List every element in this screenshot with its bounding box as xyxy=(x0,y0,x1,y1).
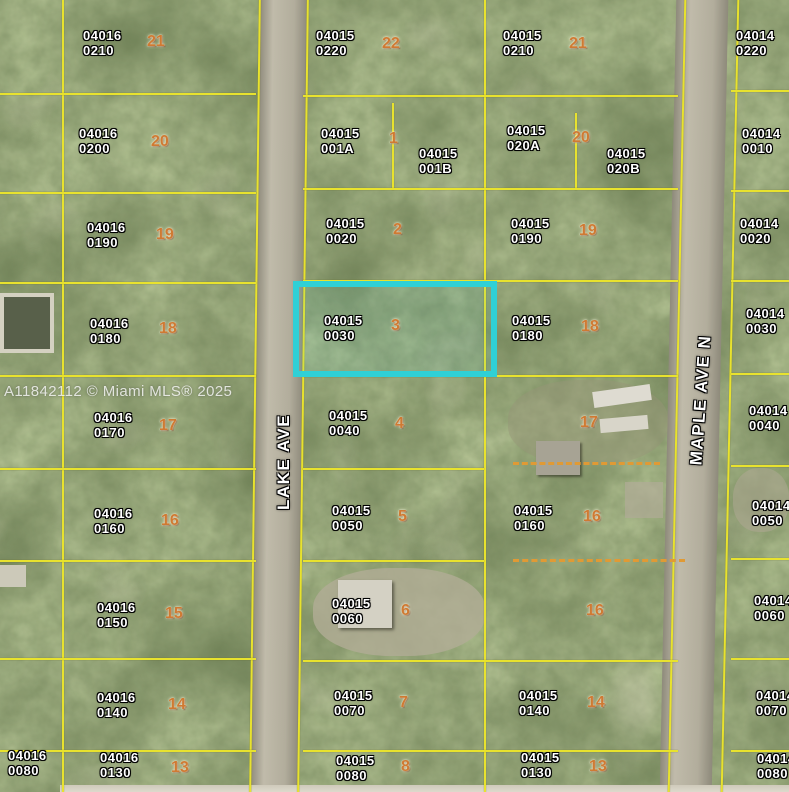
parcel-label: 040150210 xyxy=(503,28,542,58)
parcel-label: 040160170 xyxy=(94,410,133,440)
lot-number: 18 xyxy=(159,320,177,338)
lot-number: 7 xyxy=(399,694,408,712)
parcel-boundary-line xyxy=(484,0,486,792)
parcel-label: 040150070 xyxy=(334,688,373,718)
parcel-label: 040160080 xyxy=(8,748,47,778)
parcel-boundary-line xyxy=(731,658,789,660)
parcel-boundary-line xyxy=(303,750,678,752)
parcel-label: 04015001A xyxy=(321,126,360,156)
parcel-map: 040160210 040150220 040150210 040140220 … xyxy=(0,0,789,792)
parcel-boundary-line xyxy=(0,560,256,562)
parcel-boundary-line xyxy=(575,113,577,190)
parcel-boundary-line xyxy=(0,658,256,660)
building xyxy=(0,565,26,587)
lot-number: 18 xyxy=(581,318,599,336)
parcel-label: 04015020B xyxy=(607,146,646,176)
parcel-boundary-line xyxy=(303,95,678,97)
parcel-label: 040160160 xyxy=(94,506,133,536)
parcel-boundary-line xyxy=(0,468,256,470)
parcel-boundary-line xyxy=(731,280,789,282)
parcel-boundary-line xyxy=(731,373,789,375)
lot-number: 22 xyxy=(382,35,400,53)
parcel-label-highlighted: 040150030 xyxy=(324,313,363,343)
parcel-label: 040160200 xyxy=(79,126,118,156)
parcel-label: 040160180 xyxy=(90,316,129,346)
lot-number: 19 xyxy=(579,222,597,240)
lot-number: 13 xyxy=(589,758,607,776)
street-label-lake-ave: LAKE AVE xyxy=(274,414,294,510)
parcel-label: 040160210 xyxy=(83,28,122,58)
building xyxy=(625,482,663,518)
lot-number: 5 xyxy=(398,508,407,526)
building xyxy=(0,293,54,353)
lot-number: 8 xyxy=(401,758,410,776)
parcel-boundary-line xyxy=(303,468,484,470)
parcel-label: 040140050 xyxy=(752,498,789,528)
lot-number: 4 xyxy=(395,415,404,433)
lot-number: 14 xyxy=(168,696,186,714)
parcel-label: 040160190 xyxy=(87,220,126,250)
parcel-label: 040140060 xyxy=(754,593,789,623)
lot-number: 14 xyxy=(587,694,605,712)
bottom-road xyxy=(60,785,789,792)
lot-number: 6 xyxy=(401,602,410,620)
building xyxy=(536,441,580,475)
parcel-label: 040150050 xyxy=(332,503,371,533)
lot-number: 15 xyxy=(165,605,183,623)
parcel-label: 040150060 xyxy=(332,596,371,626)
parcel-label: 040150140 xyxy=(519,688,558,718)
parcel-label: 04015020A xyxy=(507,123,546,153)
parcel-label: 040150130 xyxy=(521,750,560,780)
parcel-boundary-line xyxy=(731,190,789,192)
lot-number: 20 xyxy=(151,133,169,151)
easement-dashed-line xyxy=(513,462,660,465)
parcel-boundary-line xyxy=(303,660,678,662)
parcel-boundary-line xyxy=(0,375,256,377)
lot-number: 17 xyxy=(159,417,177,435)
lot-number: 16 xyxy=(586,602,604,620)
parcel-label: 040150160 xyxy=(514,503,553,533)
parcel-boundary-line xyxy=(303,188,678,190)
parcel-boundary-line xyxy=(0,282,256,284)
parcel-label: 040150220 xyxy=(316,28,355,58)
lot-number: 16 xyxy=(583,508,601,526)
lot-number: 1 xyxy=(389,130,398,148)
parcel-label: 040140040 xyxy=(749,403,788,433)
lot-number: 21 xyxy=(147,33,165,51)
lot-number: 3 xyxy=(391,317,400,335)
mls-watermark: A11842112 © Miami MLS® 2025 xyxy=(4,383,232,400)
parcel-boundary-line xyxy=(731,465,789,467)
lot-number: 17 xyxy=(580,414,598,432)
parcel-label: 040140070 xyxy=(756,688,789,718)
lot-number: 13 xyxy=(171,759,189,777)
lot-number: 19 xyxy=(156,226,174,244)
parcel-boundary-line xyxy=(0,93,256,95)
parcel-label: 040140030 xyxy=(746,306,785,336)
parcel-boundary-line xyxy=(0,192,256,194)
parcel-label: 040160150 xyxy=(97,600,136,630)
parcel-label: 040140020 xyxy=(740,216,779,246)
parcel-label: 040160130 xyxy=(100,750,139,780)
parcel-label: 040140010 xyxy=(742,126,781,156)
parcel-label: 040150190 xyxy=(511,216,550,246)
parcel-label: 040160140 xyxy=(97,690,136,720)
parcel-label: 040150080 xyxy=(336,753,375,783)
parcel-label: 040140080 xyxy=(757,751,789,781)
lot-number: 16 xyxy=(161,512,179,530)
easement-dashed-line xyxy=(513,559,685,562)
lot-number: 20 xyxy=(572,129,590,147)
parcel-boundary-line xyxy=(731,558,789,560)
parcel-boundary-line xyxy=(731,90,789,92)
parcel-label: 040150040 xyxy=(329,408,368,438)
parcel-label: 04015001B xyxy=(419,146,458,176)
parcel-label: 040150180 xyxy=(512,313,551,343)
parcel-boundary-line xyxy=(303,560,484,562)
parcel-label: 040150020 xyxy=(326,216,365,246)
parcel-label: 040140220 xyxy=(736,28,775,58)
lot-number: 2 xyxy=(393,221,402,239)
lot-number: 21 xyxy=(569,35,587,53)
